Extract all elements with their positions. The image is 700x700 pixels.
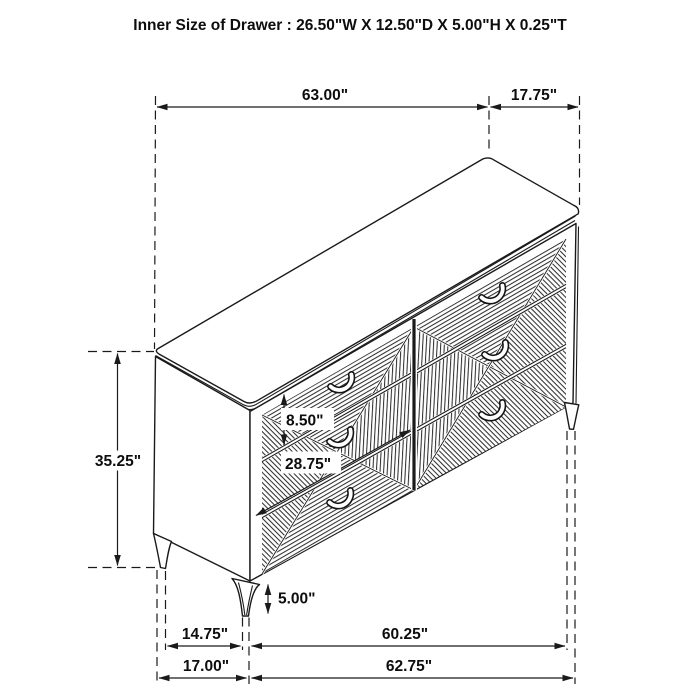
dim-label-floor-depth: 17.00" [183,658,229,675]
page-title: Inner Size of Drawer : 26.50"W X 12.50"D… [133,17,567,34]
dim-label-base-depth-span: 14.75" [182,626,228,643]
right-edge-line [576,227,579,404]
leg-back-right [565,403,579,430]
dim-label-drawer-width: 28.75" [285,456,331,473]
dim-label-floor-width: 62.75" [386,658,432,675]
dim-label-top-depth: 17.75" [511,87,557,104]
dresser-drawing [154,158,579,616]
dim-label-top-width: 63.00" [302,87,348,104]
dim-label-drawer-height: 8.50" [286,413,324,430]
dimension-diagram-page: Inner Size of Drawer : 26.50"W X 12.50"D… [0,0,700,700]
dim-label-base-width-span: 60.25" [382,626,428,643]
dim-label-leg-height: 5.00" [278,591,316,608]
dim-label-body-height: 35.25" [95,453,141,470]
dresser-dimension-diagram: Inner Size of Drawer : 26.50"W X 12.50"D… [0,0,700,700]
leg-front [232,579,260,617]
